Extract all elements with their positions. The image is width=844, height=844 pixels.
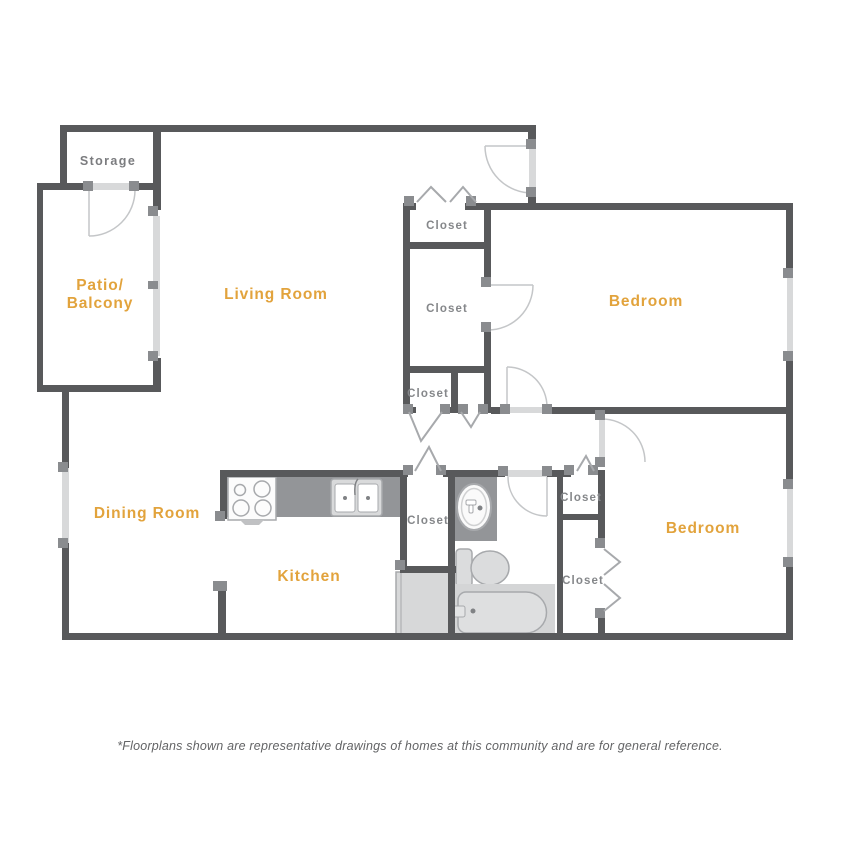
footer-disclaimer: *Floorplans shown are representative dra… — [117, 739, 723, 753]
closet-bifold-door — [604, 584, 620, 611]
walls — [37, 125, 793, 640]
floorplan-page: Storage Patio/ Balcony Living Room Dinin… — [0, 0, 844, 844]
toilet-fixture — [456, 549, 509, 587]
closet-3-label: Closet — [407, 388, 449, 400]
patio-balcony-label-line1: Patio/ — [76, 277, 124, 294]
living-room-label: Living Room — [224, 286, 328, 303]
bathtub-fixture — [452, 584, 555, 633]
floorplan: Storage Patio/ Balcony Living Room Dinin… — [0, 0, 844, 844]
dining-room-window — [62, 468, 69, 543]
kitchen-label: Kitchen — [277, 568, 340, 585]
dining-room-label: Dining Room — [94, 505, 200, 522]
stove-fixture — [228, 477, 276, 525]
bedroom-2-window — [787, 486, 793, 561]
refrigerator-fixture — [396, 572, 450, 636]
bedroom-2-door — [599, 420, 605, 461]
entry-door — [529, 146, 536, 193]
closet-bifold-door — [604, 549, 620, 575]
closet-1-label: Closet — [426, 220, 468, 232]
closet-5-label: Closet — [560, 492, 602, 504]
bedroom-1-label: Bedroom — [609, 293, 683, 310]
storage-door — [88, 183, 134, 190]
patio-balcony-label-line2: Balcony — [67, 295, 134, 312]
bedroom-2-label: Bedroom — [666, 520, 740, 537]
bedroom-1-door — [508, 407, 547, 413]
closet-bifold-door — [417, 187, 446, 202]
closet-6-label: Closet — [562, 575, 604, 587]
storage-label: Storage — [80, 154, 136, 168]
bathroom-sink-fixture — [457, 484, 491, 530]
door-swing-arcs — [89, 146, 645, 516]
closet-bifold-door — [461, 412, 480, 427]
bathroom-door — [507, 470, 547, 477]
kitchen-sink-fixture — [331, 479, 382, 516]
closet-4-label: Closet — [407, 515, 449, 527]
closet-bifold-door — [409, 412, 442, 441]
wall-connectors — [58, 139, 793, 618]
closet-2-label: Closet — [426, 303, 468, 315]
bedroom-1-window — [787, 276, 793, 355]
